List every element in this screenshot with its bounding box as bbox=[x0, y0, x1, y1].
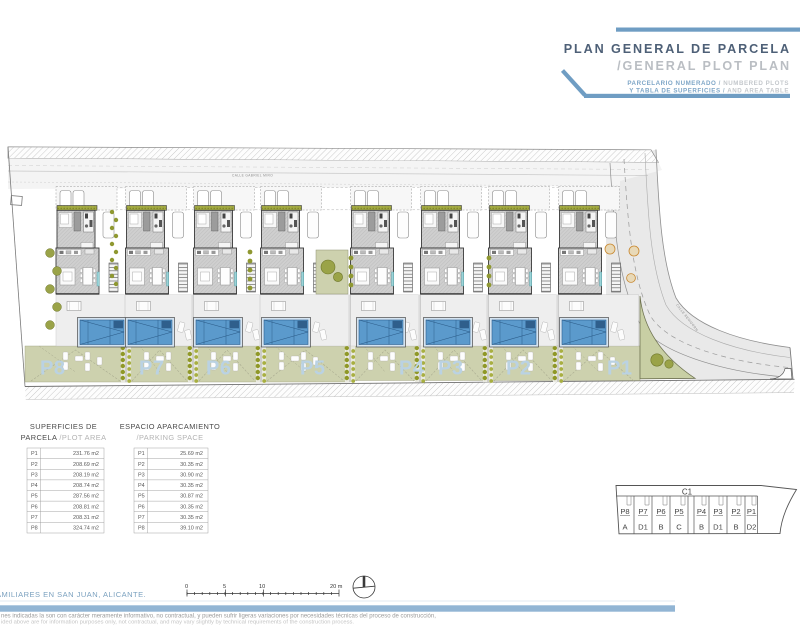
svg-text:P6: P6 bbox=[206, 358, 231, 380]
svg-text:ESPACIO APARCAMIENTO: ESPACIO APARCAMIENTO bbox=[120, 422, 220, 431]
svg-text:P1: P1 bbox=[31, 451, 38, 457]
svg-text:P1: P1 bbox=[138, 451, 145, 457]
svg-text:30.35 m2: 30.35 m2 bbox=[180, 515, 203, 521]
svg-text:PARCELA /PLOT AREA: PARCELA /PLOT AREA bbox=[21, 433, 107, 442]
svg-text:/GENERAL PLOT PLAN: /GENERAL PLOT PLAN bbox=[617, 59, 791, 73]
svg-text:B: B bbox=[658, 523, 663, 532]
svg-text:208.74 m2: 208.74 m2 bbox=[73, 483, 99, 489]
svg-text:30.35 m2: 30.35 m2 bbox=[180, 483, 203, 489]
svg-text:B: B bbox=[733, 523, 738, 532]
svg-text:SUPERFICIES DE: SUPERFICIES DE bbox=[30, 422, 97, 431]
svg-text:30.90 m2: 30.90 m2 bbox=[180, 472, 203, 478]
svg-text:P7: P7 bbox=[31, 515, 38, 521]
svg-text:P4: P4 bbox=[399, 358, 425, 380]
svg-text:0: 0 bbox=[185, 584, 188, 590]
svg-text:5: 5 bbox=[223, 584, 226, 590]
svg-text:P3: P3 bbox=[713, 507, 722, 516]
svg-text:287.56 m2: 287.56 m2 bbox=[73, 494, 99, 500]
svg-text:30.35 m2: 30.35 m2 bbox=[180, 504, 203, 510]
svg-text:P5: P5 bbox=[674, 507, 683, 516]
svg-text:CALLE GABRIEL MIRO: CALLE GABRIEL MIRO bbox=[232, 174, 273, 178]
svg-text:P4: P4 bbox=[697, 507, 706, 516]
svg-text:P2: P2 bbox=[138, 462, 145, 468]
svg-text:P3: P3 bbox=[138, 472, 145, 478]
svg-text:25.69 m2: 25.69 m2 bbox=[180, 451, 203, 457]
svg-text:D1: D1 bbox=[713, 523, 723, 532]
svg-text:P7: P7 bbox=[139, 358, 164, 380]
svg-text:39.10 m2: 39.10 m2 bbox=[180, 526, 203, 532]
svg-text:/PARKING SPACE: /PARKING SPACE bbox=[137, 433, 204, 442]
svg-text:P3: P3 bbox=[438, 358, 463, 380]
svg-text:P8: P8 bbox=[138, 526, 145, 532]
svg-text:P8: P8 bbox=[620, 507, 629, 516]
svg-text:324.74 m2: 324.74 m2 bbox=[73, 526, 99, 532]
svg-text:P3: P3 bbox=[31, 472, 38, 478]
svg-text:P7: P7 bbox=[638, 507, 647, 516]
svg-text:P1: P1 bbox=[607, 358, 632, 380]
svg-text:208.19 m2: 208.19 m2 bbox=[73, 472, 99, 478]
svg-text:P5: P5 bbox=[138, 494, 145, 500]
svg-text:P2: P2 bbox=[31, 462, 38, 468]
svg-text:P8: P8 bbox=[31, 526, 38, 532]
svg-text:PARCELARIO NUMERADO / NUMBERED: PARCELARIO NUMERADO / NUMBERED PLOTS bbox=[627, 80, 789, 87]
svg-text:208.81 m2: 208.81 m2 bbox=[73, 504, 99, 510]
svg-text:P2: P2 bbox=[731, 507, 740, 516]
svg-text:P5: P5 bbox=[300, 358, 325, 380]
svg-text:P7: P7 bbox=[138, 515, 145, 521]
svg-text:P4: P4 bbox=[138, 483, 145, 489]
svg-text:P5: P5 bbox=[31, 494, 38, 500]
svg-text:C: C bbox=[676, 523, 682, 532]
svg-text:208.69 m2: 208.69 m2 bbox=[73, 462, 99, 468]
svg-text:P1: P1 bbox=[747, 507, 756, 516]
svg-text:P8: P8 bbox=[40, 358, 65, 380]
svg-text:10: 10 bbox=[259, 584, 265, 590]
svg-text:208.31 m2: 208.31 m2 bbox=[73, 515, 99, 521]
svg-text:D1: D1 bbox=[638, 523, 648, 532]
svg-text:ided above are for information: ided above are for information purposes … bbox=[1, 620, 354, 626]
svg-text:P6: P6 bbox=[656, 507, 665, 516]
svg-text:D2: D2 bbox=[747, 523, 757, 532]
svg-text:P4: P4 bbox=[31, 483, 38, 489]
svg-text:20 m: 20 m bbox=[330, 584, 343, 590]
svg-text:30.87 m2: 30.87 m2 bbox=[180, 494, 203, 500]
svg-text:AMILIARES EN SAN JUAN, ALICANT: AMILIARES EN SAN JUAN, ALICANTE. bbox=[0, 590, 146, 599]
svg-text:P6: P6 bbox=[31, 504, 38, 510]
svg-text:30.35 m2: 30.35 m2 bbox=[180, 462, 203, 468]
svg-text:PLAN GENERAL DE PARCELA: PLAN GENERAL DE PARCELA bbox=[564, 42, 791, 56]
svg-text:Y TABLA DE SUPERFICIES / AND A: Y TABLA DE SUPERFICIES / AND AREA TABLE bbox=[629, 88, 789, 95]
svg-text:B: B bbox=[699, 523, 704, 532]
svg-text:C1: C1 bbox=[682, 488, 693, 497]
svg-text:P6: P6 bbox=[138, 504, 145, 510]
svg-text:P2: P2 bbox=[506, 358, 531, 380]
svg-text:231.76 m2: 231.76 m2 bbox=[73, 451, 99, 457]
